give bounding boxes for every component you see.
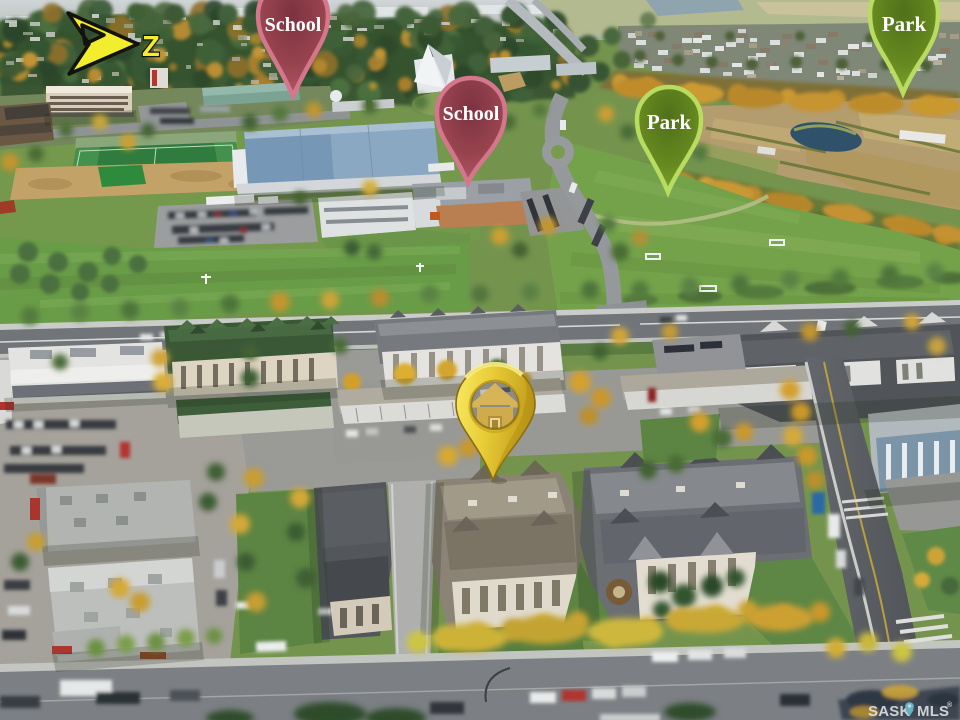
svg-text:Park: Park <box>647 110 692 134</box>
svg-text:School: School <box>443 103 500 125</box>
svg-text:SASK: SASK <box>868 703 910 720</box>
svg-text:MLS: MLS <box>917 703 949 720</box>
svg-text:®: ® <box>947 701 953 709</box>
svg-text:Park: Park <box>882 12 927 36</box>
svg-text:School: School <box>265 14 322 36</box>
svg-text:Z: Z <box>142 31 160 63</box>
